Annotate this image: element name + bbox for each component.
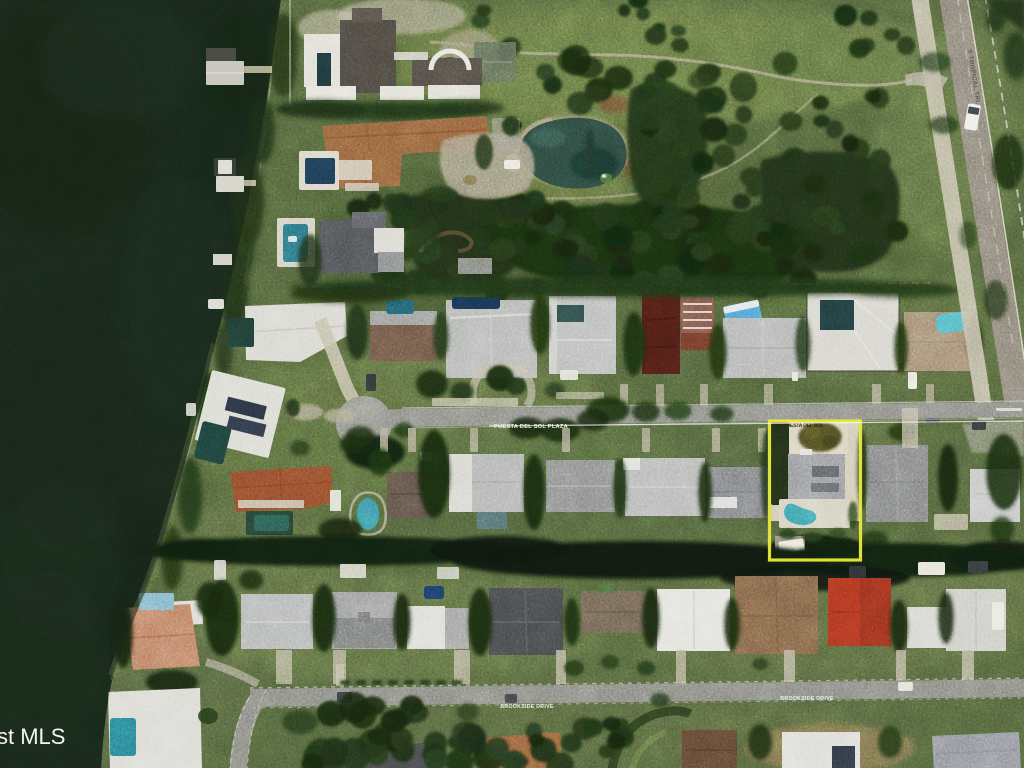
svg-text:PUESTA DEL SOL PLAZA: PUESTA DEL SOL PLAZA (494, 424, 568, 430)
svg-text:st MLS: st MLS (0, 724, 65, 749)
svg-text:1355 PUESTA DEL SOL: 1355 PUESTA DEL SOL (772, 423, 824, 429)
